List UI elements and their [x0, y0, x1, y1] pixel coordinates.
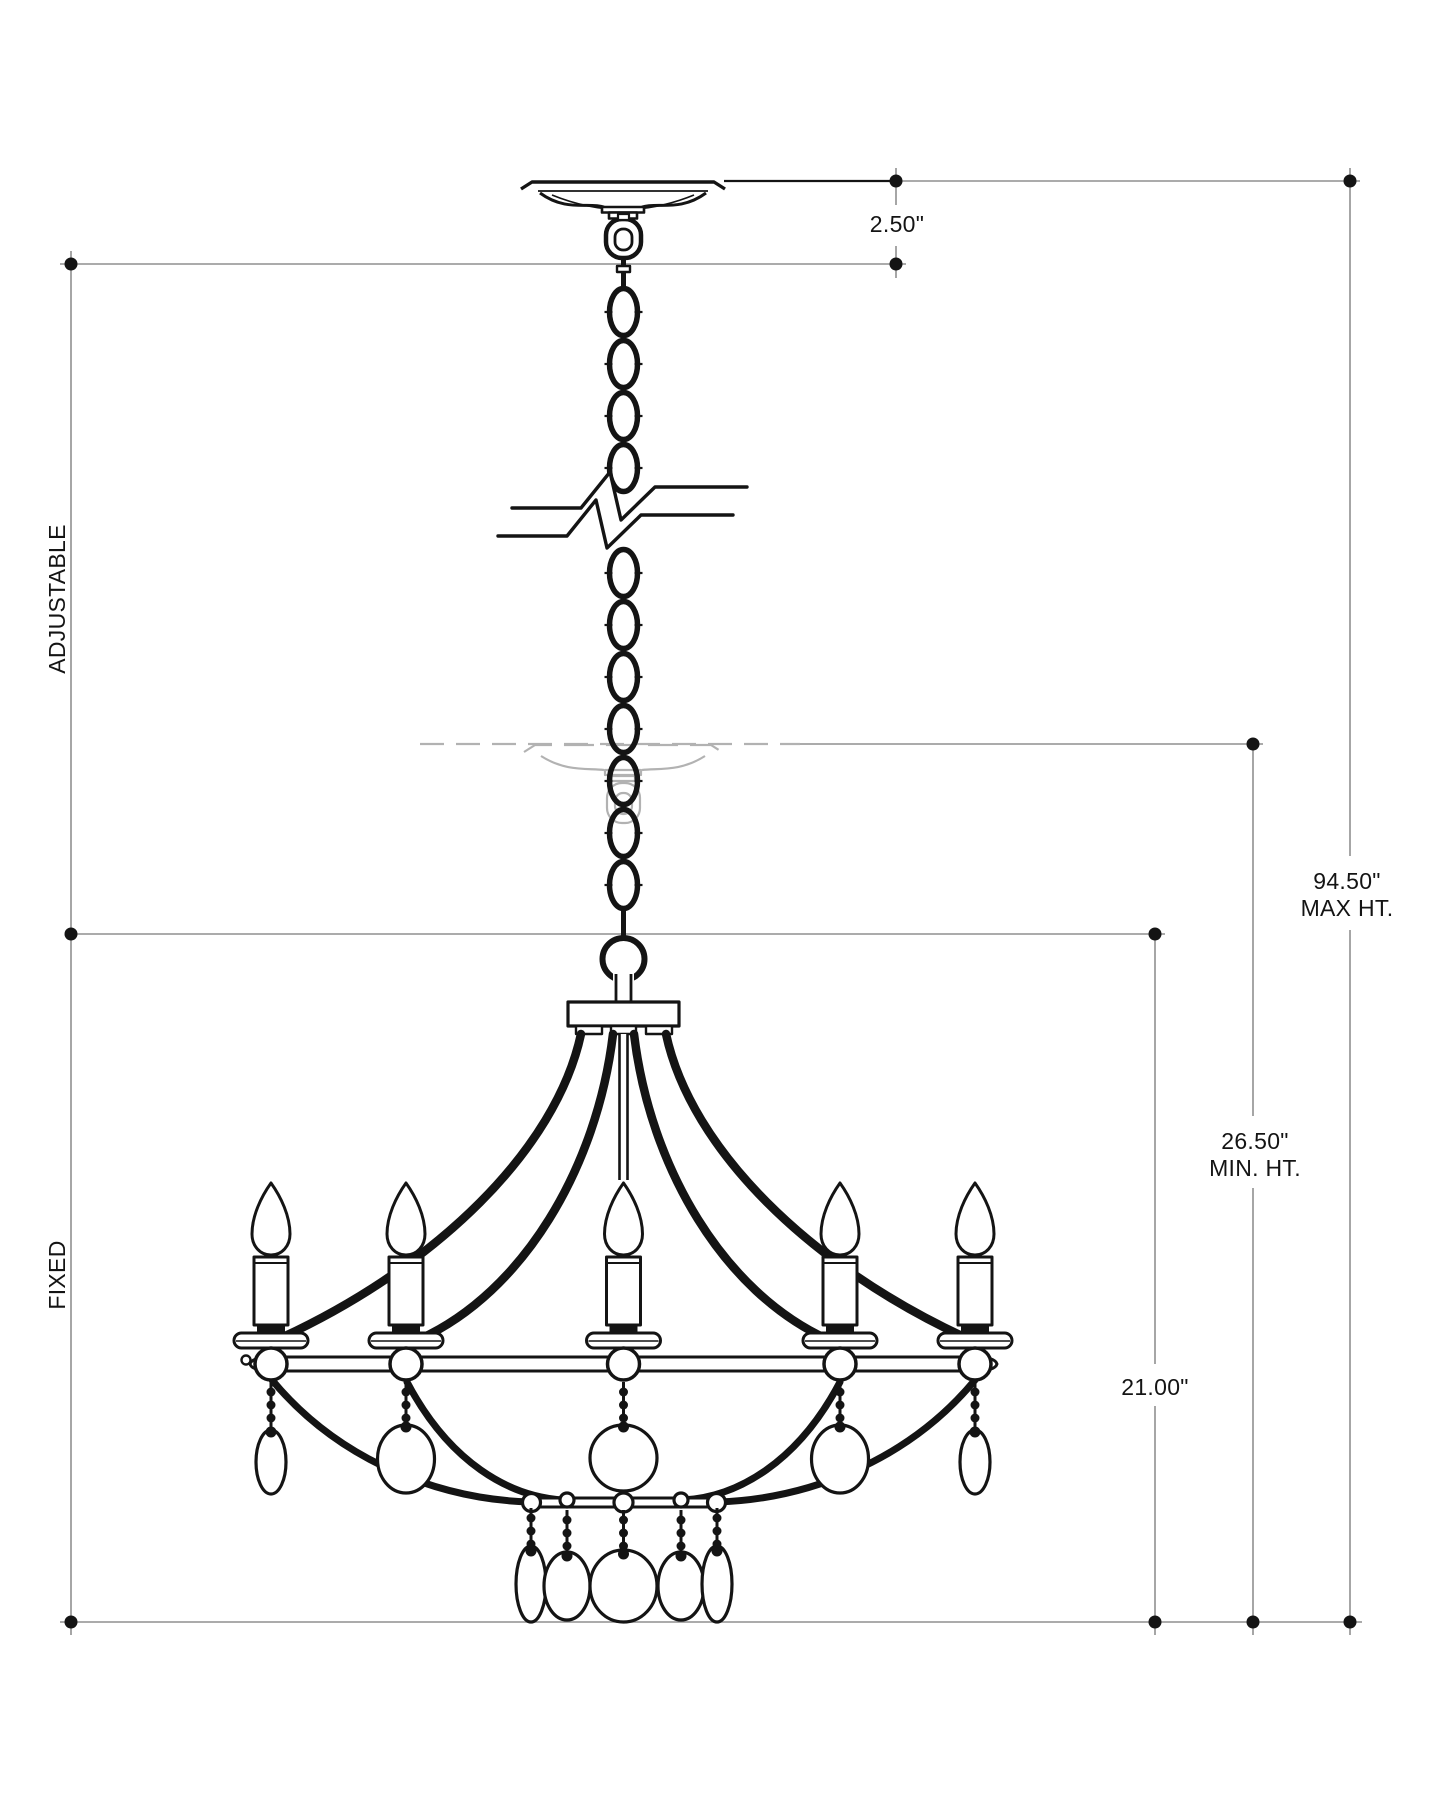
- lower-crystal-drops: [516, 1508, 732, 1622]
- dim-max-height-caption: MAX HT.: [1301, 895, 1394, 921]
- dim-canopy-height-label: 2.50": [870, 211, 924, 237]
- dimension-labels: 2.50" 94.50" MAX HT. 26.50" MIN. HT. 21.…: [44, 211, 1393, 1400]
- arm-hub: [568, 1002, 679, 1026]
- dim-min-height-caption: MIN. HT.: [1209, 1155, 1301, 1181]
- dim-max-height-value: 94.50": [1313, 868, 1381, 894]
- candle: [587, 1183, 661, 1380]
- stem: [616, 974, 631, 1004]
- dimension-lines: [60, 168, 1362, 1635]
- dimension-dots: [65, 175, 1357, 1629]
- candles: [234, 1183, 1012, 1380]
- chain-break-symbol: [498, 472, 747, 548]
- candle: [234, 1183, 308, 1380]
- upper-crystal-drops: [256, 1382, 990, 1494]
- hanging-chain: [605, 289, 643, 942]
- dim-fixture-height-label: 21.00": [1121, 1374, 1189, 1400]
- fixed-label: FIXED: [44, 1240, 70, 1309]
- center-rod: [620, 1034, 628, 1180]
- ceiling-canopy: [521, 182, 725, 290]
- drawing-sheet: 2.50" 94.50" MAX HT. 26.50" MIN. HT. 21.…: [0, 0, 1445, 1806]
- dim-min-height-value: 26.50": [1221, 1128, 1289, 1154]
- dimension-drawing: 2.50" 94.50" MAX HT. 26.50" MIN. HT. 21.…: [0, 0, 1445, 1806]
- candle: [938, 1183, 1012, 1380]
- adjustable-label: ADJUSTABLE: [44, 524, 70, 674]
